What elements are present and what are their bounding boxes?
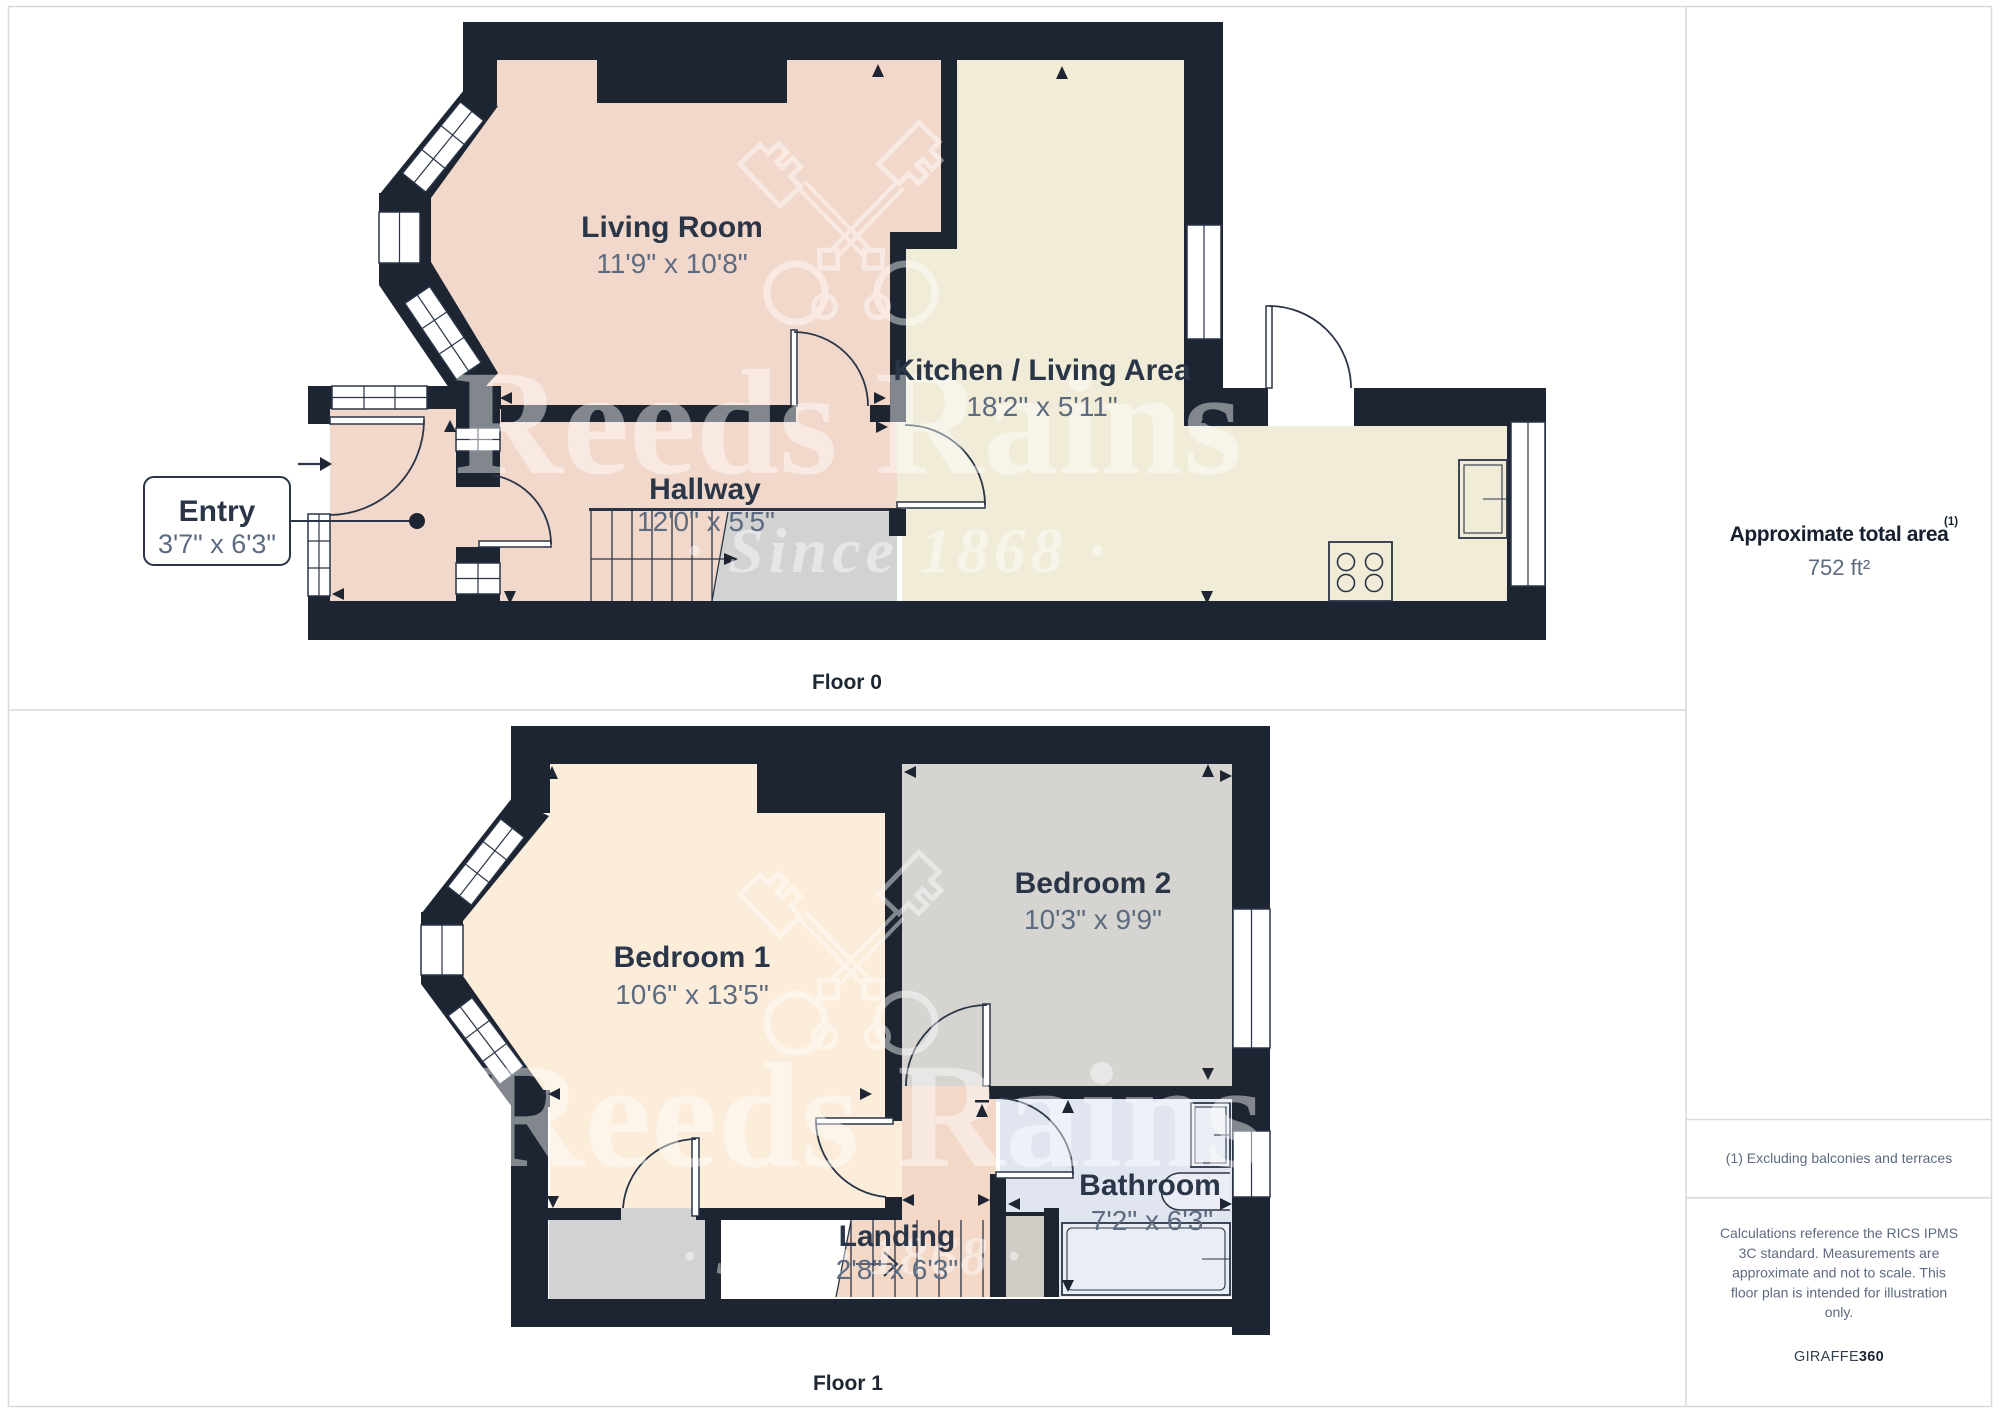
- svg-text:Bathroom: Bathroom: [1079, 1169, 1221, 1202]
- svg-text:approximate and not to scale.: approximate and not to scale. This: [1732, 1265, 1946, 1281]
- svg-text:Kitchen / Living Area: Kitchen / Living Area: [893, 354, 1191, 387]
- svg-text:GIRAFFE360: GIRAFFE360: [1794, 1349, 1884, 1365]
- svg-text:only.: only.: [1825, 1304, 1854, 1320]
- svg-text:Bedroom 1: Bedroom 1: [614, 941, 771, 974]
- svg-text:Landing: Landing: [839, 1220, 956, 1253]
- svg-text:(1) Excluding balconies and te: (1) Excluding balconies and terraces: [1726, 1150, 1952, 1166]
- svg-text:7'2" x 6'3": 7'2" x 6'3": [1091, 1205, 1213, 1236]
- svg-text:Floor 0: Floor 0: [812, 671, 882, 694]
- svg-text:Approximate total area: Approximate total area: [1730, 523, 1949, 546]
- svg-text:12'0" x 5'5": 12'0" x 5'5": [637, 506, 775, 537]
- svg-text:floor plan is intended for ill: floor plan is intended for illustration: [1731, 1284, 1947, 1300]
- svg-text:2'8" x 6'3": 2'8" x 6'3": [836, 1254, 958, 1285]
- svg-text:Entry: Entry: [179, 495, 256, 528]
- svg-text:3C standard. Measurements are: 3C standard. Measurements are: [1739, 1245, 1940, 1261]
- svg-text:10'6" x 13'5": 10'6" x 13'5": [615, 979, 769, 1010]
- svg-text:Floor 1: Floor 1: [813, 1372, 883, 1395]
- svg-text:Calculations reference the RIC: Calculations reference the RICS IPMS: [1720, 1225, 1958, 1241]
- svg-text:11'9" x 10'8": 11'9" x 10'8": [596, 248, 747, 279]
- svg-text:752 ft²: 752 ft²: [1808, 555, 1870, 580]
- svg-text:10'3" x 9'9": 10'3" x 9'9": [1024, 904, 1162, 935]
- svg-text:Hallway: Hallway: [649, 473, 761, 506]
- svg-text:(1): (1): [1944, 516, 1958, 528]
- svg-text:18'2" x 5'11": 18'2" x 5'11": [966, 391, 1117, 422]
- svg-text:3'7" x 6'3": 3'7" x 6'3": [158, 529, 276, 559]
- svg-text:Living Room: Living Room: [581, 211, 763, 244]
- svg-text:Bedroom 2: Bedroom 2: [1015, 867, 1172, 900]
